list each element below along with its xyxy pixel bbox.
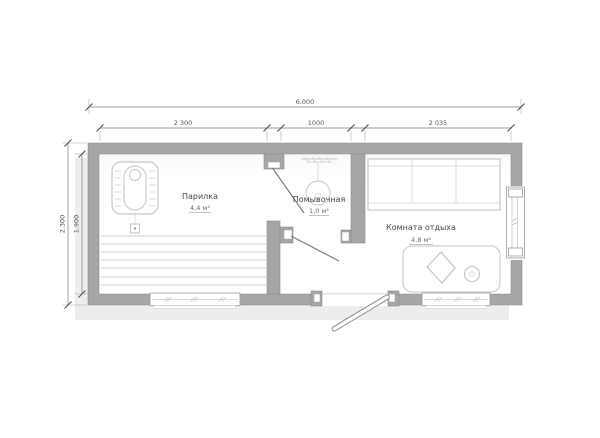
room-name-restroom: Комната отдыха <box>386 223 456 232</box>
parilka-partition-wall <box>267 221 280 294</box>
dimension-overall-width: 6.000 <box>86 98 525 114</box>
bed-icon <box>368 159 500 210</box>
dimension-label-washroom-width: 1000 <box>308 119 325 127</box>
dimension-label-parilka-width: 2 300 <box>174 119 193 127</box>
window-icon-right-wall <box>507 187 525 258</box>
window-icon-bottom-right <box>422 293 490 309</box>
dimension-label-total-depth: 2.300 <box>59 215 67 234</box>
dimension-label-total-width: 6.000 <box>296 98 315 106</box>
dimension-label-inner-depth: 1.900 <box>73 215 81 234</box>
dimension-room-widths: 2 300 1000 2 035 <box>97 119 515 141</box>
stool-icon <box>465 267 480 282</box>
washroom-partition-wall <box>351 154 365 243</box>
room-name-parilka: Парилка <box>182 192 218 201</box>
room-area-washroom: 1,0 м² <box>309 207 329 215</box>
room-name-washroom: Помывочная <box>293 195 346 204</box>
room-area-parilka: 4,4 м² <box>190 204 210 212</box>
floor-plan-drawing: 6.000 2 300 1000 2 035 2.300 1.900 <box>0 0 600 438</box>
dimension-label-restroom-width: 2 035 <box>429 119 448 127</box>
floor-plan-canvas: 6.000 2 300 1000 2 035 2.300 1.900 <box>0 0 600 438</box>
window-icon-bottom-left <box>150 293 240 309</box>
room-area-restroom: 4,8 м² <box>411 236 431 244</box>
